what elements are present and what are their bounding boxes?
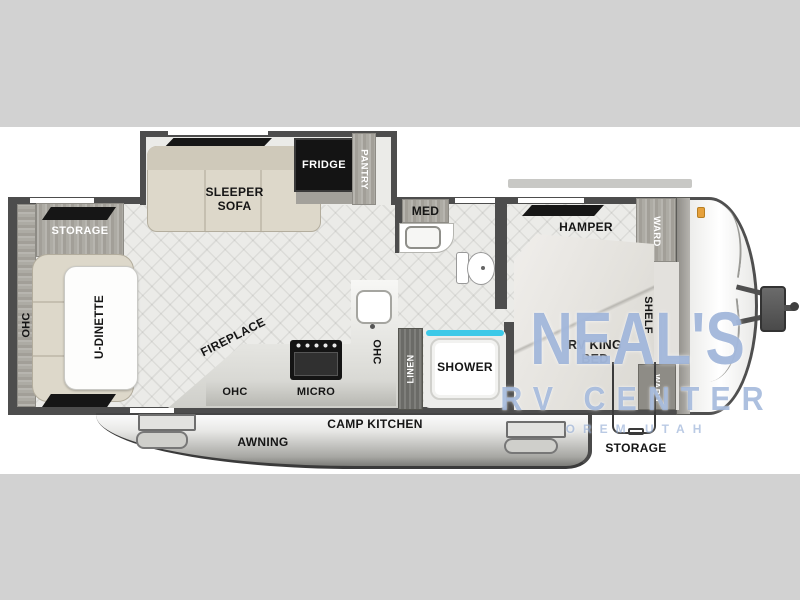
hitch-ball (790, 302, 799, 311)
hamper-label: HAMPER (540, 220, 632, 234)
micro-label: MICRO (286, 386, 346, 398)
front-storage-outline (612, 362, 656, 434)
awning-label: AWNING (228, 435, 298, 449)
linen-label: LINEN (405, 355, 415, 384)
bath-window-gap (455, 198, 497, 203)
toilet-flush (481, 266, 485, 270)
u-dinette-label: U-DINETTE (94, 295, 106, 359)
linen-label-wrap: LINEN (393, 336, 427, 402)
entry-step-left-upper (138, 414, 196, 431)
u-dinette-label-wrap: U-DINETTE (60, 280, 140, 374)
pantry-label: PANTRY (359, 149, 370, 189)
marker-light (697, 207, 705, 218)
pantry-label-wrap: PANTRY (348, 136, 380, 202)
bath-sink (405, 226, 441, 249)
camp-kitchen-label: CAMP KITCHEN (320, 417, 430, 431)
rear-bottom-window-bar (42, 394, 116, 407)
shelf-label: SHELF (642, 296, 654, 334)
stove-panel (294, 352, 338, 376)
ward-upper-label-wrap: WARD (638, 204, 674, 258)
bedroom-window-bar (522, 205, 604, 216)
med-label: MED (412, 204, 440, 218)
kitchen-faucet (370, 324, 375, 329)
shower-glass (426, 330, 504, 336)
entry-step-left-lower (136, 431, 188, 449)
bed-slide-header (508, 179, 692, 188)
rear-storage-label: STORAGE (36, 225, 124, 237)
bed-window-gap (518, 198, 584, 203)
floorplan-canvas: OHC STORAGE U-DINETTE SLEEPER SOFA FRIDG… (0, 0, 800, 600)
shelf-label-wrap: SHELF (634, 280, 662, 350)
front-storage-label: STORAGE (598, 441, 674, 455)
bath-wall-right (495, 197, 507, 309)
kitchen-ohc-label: OHC (206, 386, 264, 398)
med-cabinet: MED (402, 199, 449, 223)
stove-knobs (294, 343, 338, 348)
fridge: FRIDGE (294, 138, 354, 192)
ward-upper-label: WARD (651, 216, 662, 247)
sleeper-sofa-label: SLEEPER SOFA (157, 186, 312, 214)
sofa-slide-window-gap (168, 131, 268, 135)
counter-ohc-label-wrap: OHC (358, 330, 396, 374)
rear-ohc-label: OHC (21, 312, 33, 337)
rear-ohc-label-wrap: OHC (12, 290, 42, 360)
entry-step-right-lower (504, 438, 558, 454)
shower-label: SHOWER (424, 360, 506, 374)
entry-step-right-upper (506, 421, 566, 438)
fridge-label: FRIDGE (302, 159, 346, 171)
rear-window-bar (42, 207, 116, 220)
front-storage-handle (628, 428, 644, 435)
propane-box (760, 286, 786, 332)
counter-ohc-label: OHC (371, 339, 383, 364)
kitchen-sink (356, 290, 392, 324)
